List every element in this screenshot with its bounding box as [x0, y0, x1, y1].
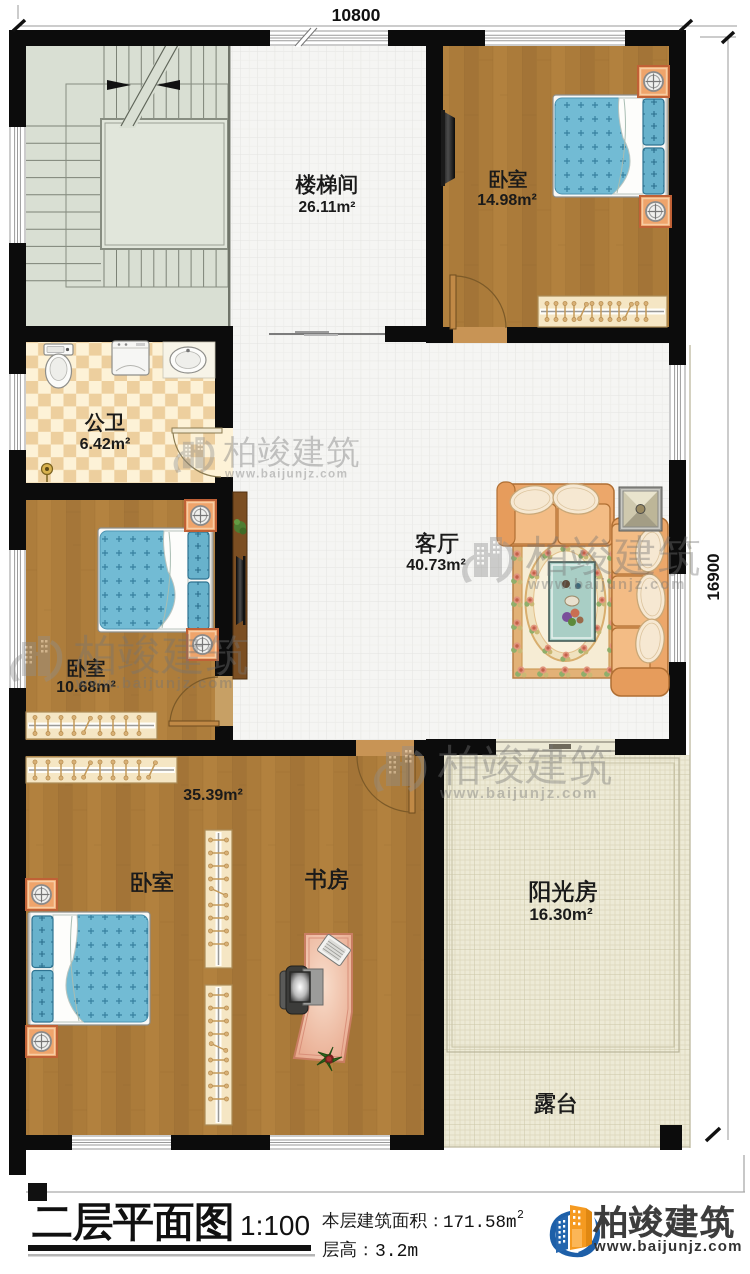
svg-text:16900: 16900: [704, 553, 723, 600]
svg-text:16.30m²: 16.30m²: [529, 905, 593, 924]
svg-text:2: 2: [517, 1209, 524, 1222]
svg-text:171.58m: 171.58m: [443, 1213, 517, 1233]
svg-text:1:100: 1:100: [240, 1210, 310, 1241]
svg-text:www.baijunjz.com: www.baijunjz.com: [593, 1238, 743, 1255]
svg-text:40.73m²: 40.73m²: [406, 557, 466, 574]
svg-text:3.2m: 3.2m: [375, 1242, 418, 1262]
svg-text:35.39m²: 35.39m²: [183, 787, 243, 804]
svg-text:www.baijunjz.com: www.baijunjz.com: [439, 785, 598, 802]
svg-text:10800: 10800: [332, 5, 381, 25]
svg-text:www.baijunjz.com: www.baijunjz.com: [75, 675, 234, 692]
svg-text:www.baijunjz.com: www.baijunjz.com: [527, 576, 686, 593]
svg-text:26.11m²: 26.11m²: [299, 199, 356, 216]
svg-text:www.baijunjz.com: www.baijunjz.com: [224, 468, 348, 481]
svg-text:14.98m²: 14.98m²: [477, 192, 537, 209]
svg-text:6.42m²: 6.42m²: [80, 436, 131, 453]
